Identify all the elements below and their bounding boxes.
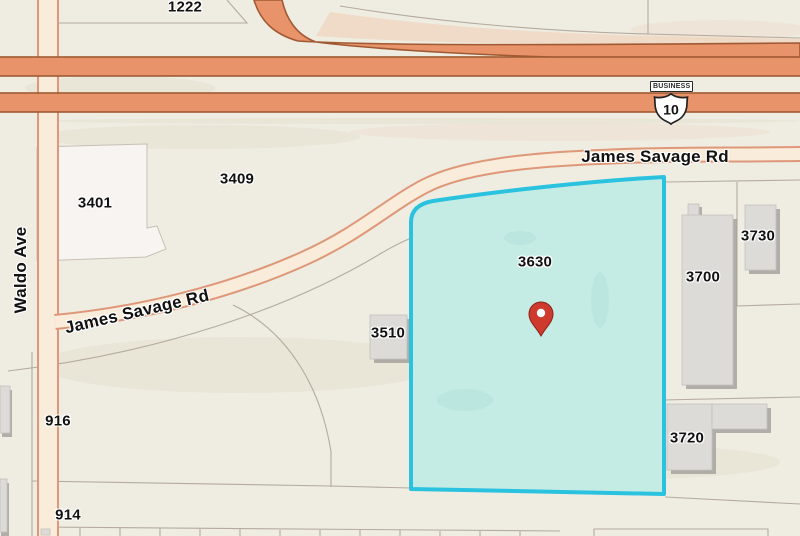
map-canvas[interactable]: 1222 3401 3409 3510 3630 3700 3720 3730 … xyxy=(0,0,800,536)
parcel-label-914: 914 xyxy=(55,507,81,524)
route-shield-banner: BUSINESS xyxy=(650,81,693,92)
road-label-james-savage-top: James Savage Rd xyxy=(581,147,729,167)
road-label-waldo-ave: Waldo Ave xyxy=(11,227,31,314)
building-edge-1 xyxy=(0,386,10,433)
parcel-label-3409: 3409 xyxy=(220,171,254,188)
parcel-label-3510: 3510 xyxy=(371,325,405,342)
building-edge-2 xyxy=(0,479,7,532)
us-route-shield-icon: 10 xyxy=(652,93,690,125)
parcel-label-3720: 3720 xyxy=(670,430,704,447)
parcel-label-3630: 3630 xyxy=(518,254,552,271)
parcel-3630-highlight[interactable] xyxy=(411,177,664,494)
route-shield-number: 10 xyxy=(663,102,679,118)
building-edge-3 xyxy=(41,529,50,535)
parcel-label-3700: 3700 xyxy=(686,269,720,286)
parcel-label-3730: 3730 xyxy=(741,228,775,245)
highway-upper-lane xyxy=(0,57,800,76)
parcel-label-916: 916 xyxy=(45,413,71,430)
parcel-label-3401: 3401 xyxy=(78,195,112,212)
route-shield-business-10: BUSINESS 10 xyxy=(650,76,692,129)
building-3720-b xyxy=(712,404,767,429)
building-3700 xyxy=(682,215,733,385)
parcel-label-1222: 1222 xyxy=(168,0,202,16)
